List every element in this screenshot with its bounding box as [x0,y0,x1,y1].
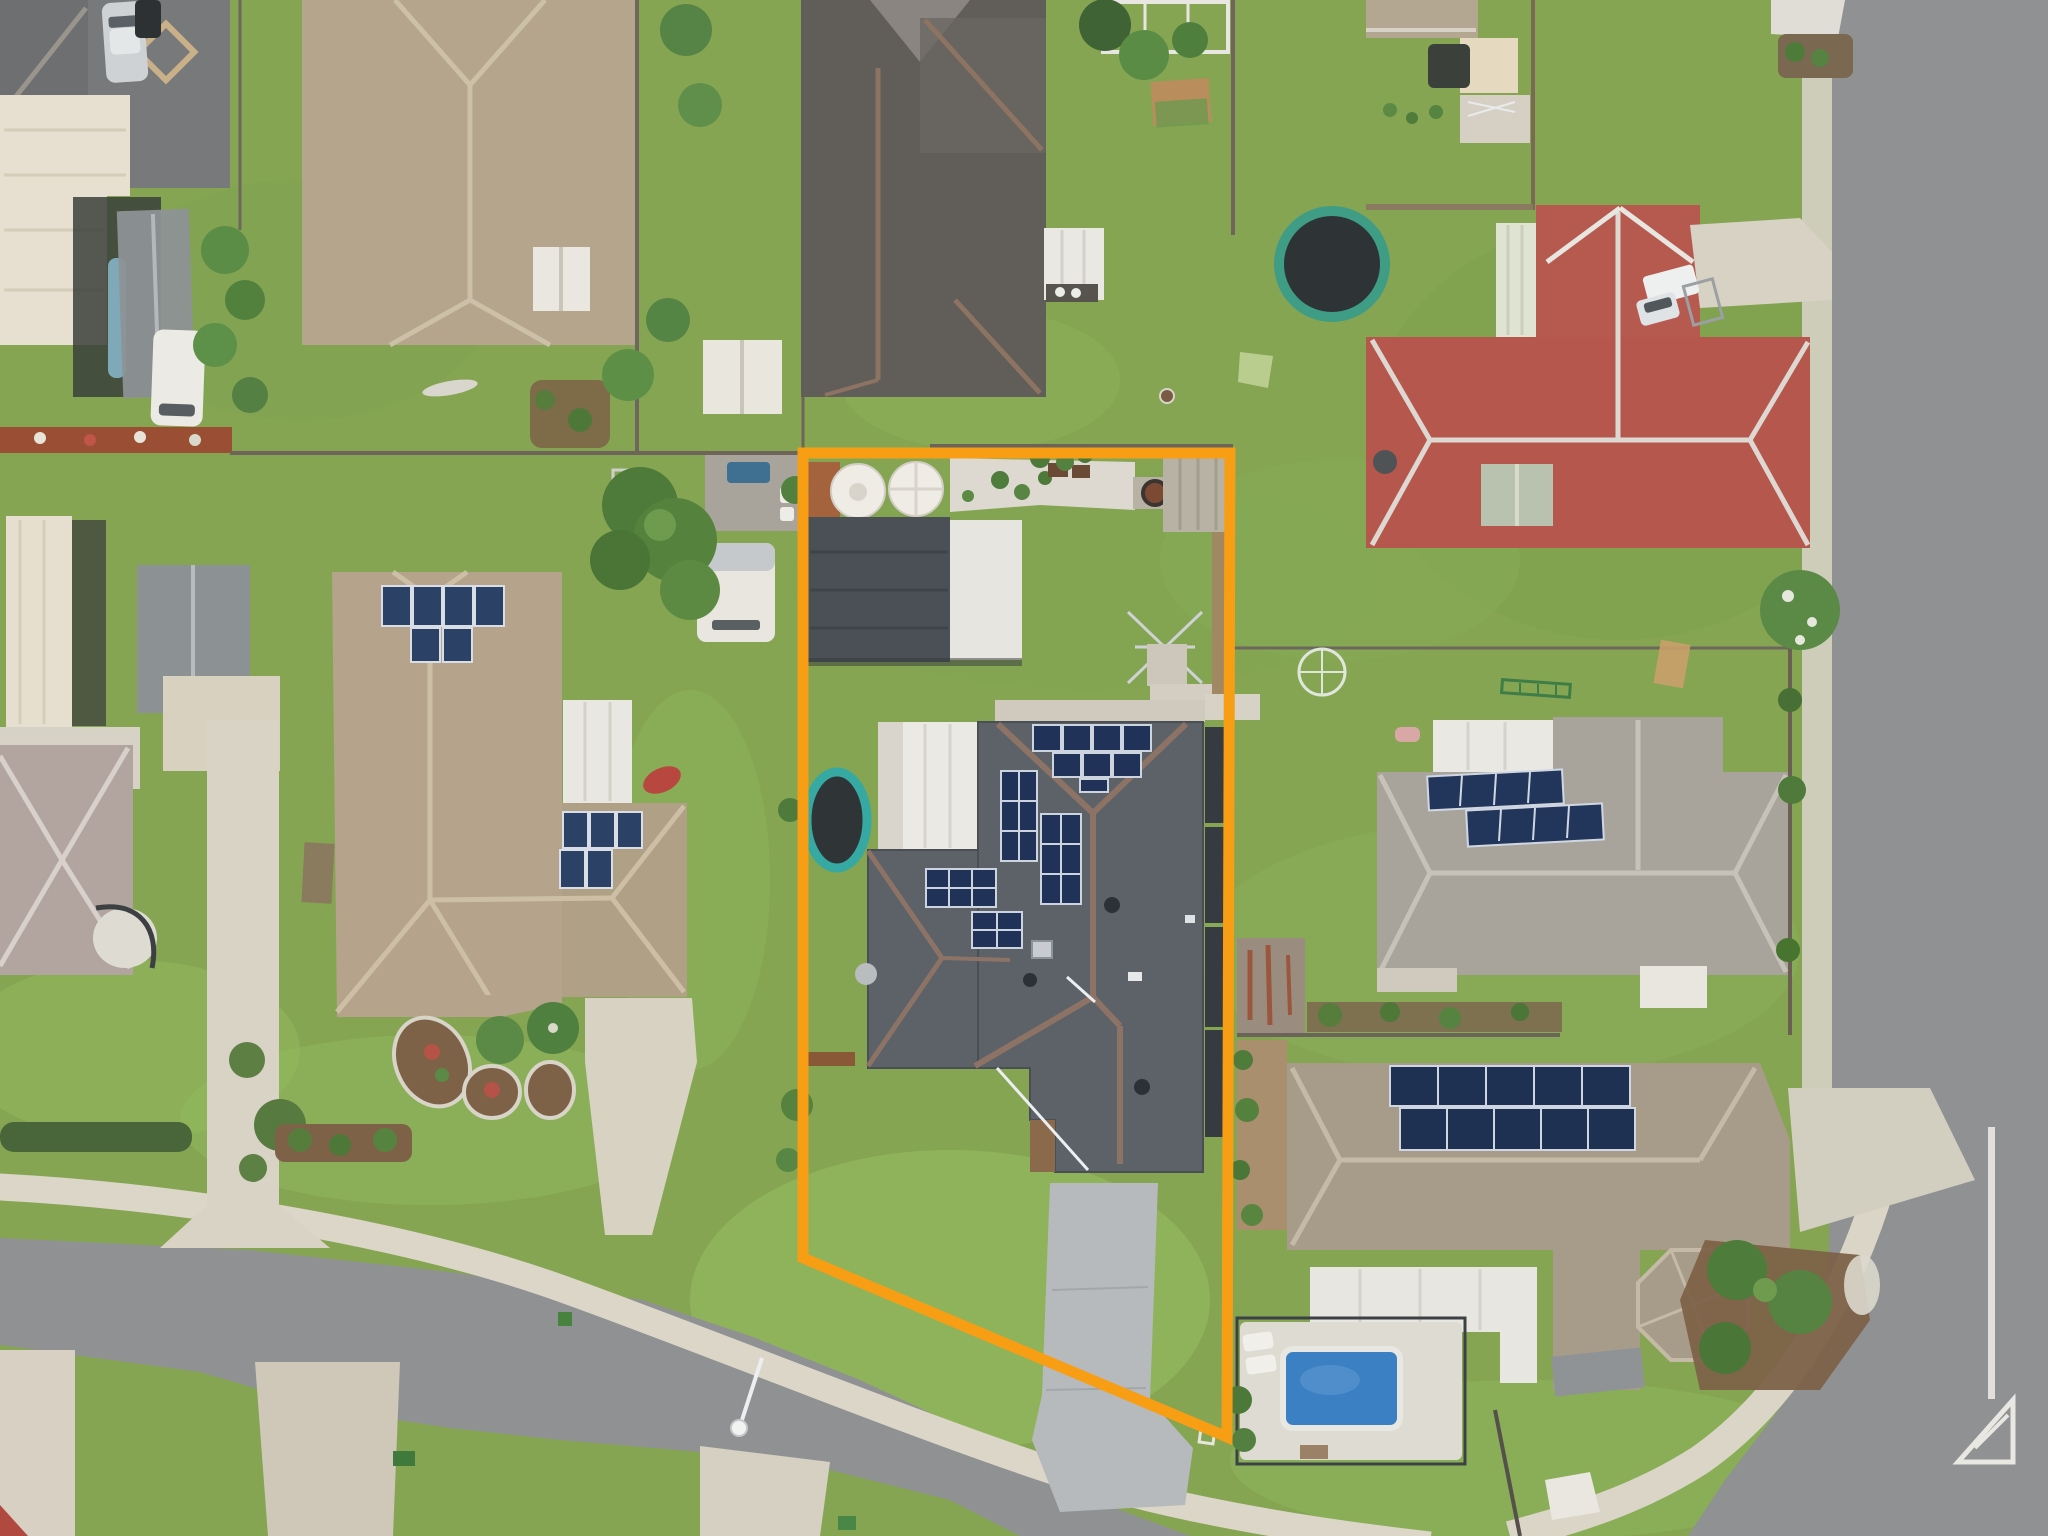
planter-box [1072,465,1090,478]
clothesline-pad [1147,644,1187,686]
roof-top-left-gray [0,0,88,110]
front-bed-highlight [1753,1278,1777,1302]
solar-panel [590,812,615,848]
pebble-garden [93,908,157,968]
outdoor-setting-blue [727,462,770,483]
palm [602,349,654,401]
roof-vent [1104,897,1120,913]
path-top-of-house [995,700,1205,722]
white-flower-dots [1782,590,1794,602]
play-fort-base [1155,98,1209,128]
deck-chair [780,507,794,521]
water-tank-lid [849,483,867,501]
tan-ridge [430,898,612,900]
white-flower-dots [1795,635,1805,645]
backyard-plant [1014,484,1030,500]
satellite-dish [855,963,877,985]
hedge-row [0,1122,192,1152]
sunken-trampoline [1428,44,1470,88]
pot-plant [1383,103,1397,117]
palm [678,83,722,127]
solar-panel [444,586,473,626]
garden-bed-green [1511,1003,1529,1021]
solar-panel [413,586,442,626]
skylight [1032,941,1052,958]
flower-dots [84,434,96,446]
roof-strip-top [1366,0,1478,38]
solar-panel [617,812,642,848]
gravel-bush [1235,1098,1259,1122]
palm [660,4,712,56]
palm [1172,22,1208,58]
trampoline-teal [807,772,867,868]
solar-panel [1093,725,1121,751]
solar-panel [587,850,612,888]
palm [193,323,237,367]
flower-dots [189,434,201,446]
garden-flower [424,1044,440,1060]
garden-bed-long-green [288,1128,312,1152]
paint-patch [1238,352,1273,388]
solar-panel [1033,725,1061,751]
utility-box [838,1516,856,1530]
ivy-on-fence [1778,776,1806,804]
roof-vent [1023,973,1037,987]
streetlight-lamp [731,1420,747,1436]
boundary-bush [776,1148,800,1172]
tree-large [590,530,650,590]
pot-plant [1429,105,1443,119]
cream-building-2 [6,516,72,728]
garden-bush [1811,49,1829,67]
rust-streak [1288,955,1290,1015]
garden-island-bed [526,1062,574,1118]
bird-bath [1160,389,1174,403]
patio-chair [1055,287,1065,297]
garden-bush [1785,42,1805,62]
white-rock-edge [1844,1255,1880,1315]
palm [1119,30,1169,80]
solar-panel [1063,725,1091,751]
poolside-steps [1300,1445,1328,1459]
ivy-on-fence [1776,938,1800,962]
caravan-one-window [159,403,195,416]
concrete-pad-gray-lot [1377,968,1457,992]
caravan-two-window [712,620,760,630]
tree-highlight [644,509,676,541]
bush [229,1042,265,1078]
patio-white-tan-house [563,700,632,803]
garden-flower [484,1082,500,1098]
garden-palm-center [548,1023,558,1033]
front-bed-tree [1699,1322,1751,1374]
road-shoulder-strip [1802,0,1832,1100]
solar-panel [1083,753,1111,777]
backyard-plant [962,490,974,502]
solar-panel [563,812,588,848]
pool-screen-dark [72,520,106,726]
satellite-dish-red-roof [1373,450,1397,474]
backyard-plant [991,471,1009,489]
palm [646,298,690,342]
solar-array-large [1400,1108,1635,1150]
gravel-bush [1233,1050,1253,1070]
shed-white-section [950,520,1022,660]
car-dark-ute [135,0,161,38]
palm [232,377,268,413]
garden-bed-green [1318,1003,1342,1027]
bay-window-roof [398,995,506,1017]
ivy-on-fence [1778,688,1802,712]
palm [225,280,265,320]
utility-box [393,1451,415,1466]
bush [239,1154,267,1182]
tree-large [660,560,720,620]
pebble-strip-west [878,722,903,850]
patio-white-wing [1500,1267,1537,1383]
solar-panel [411,628,440,662]
mulch-bed-green [535,390,555,410]
garden-bed-long-green [373,1128,397,1152]
roof-vent [1134,1079,1150,1095]
garden-tree [476,1016,524,1064]
driveway-red-house [1690,218,1832,308]
shed-shadow [808,658,1022,666]
garden-bed-long-green [329,1134,351,1156]
roof-box-white [1128,972,1142,981]
rust-streak [1268,945,1270,1025]
aerial-drone-photo [0,0,2048,1536]
mulch-bed-green [568,408,592,432]
roof-corner-top-right [1771,0,1845,38]
garden-bed-green [1439,1007,1461,1029]
trampoline-green [1279,211,1385,317]
palm [201,226,249,274]
flower-dots [134,431,146,443]
driveway-below-road-1 [0,1350,75,1536]
awning-side [301,842,334,903]
aerial-photo-stage [0,0,2048,1536]
solar-panel [1080,779,1108,792]
shed-white-gray-lot [1640,966,1707,1008]
gravel-bush [1241,1204,1263,1226]
garden-bed-green [1380,1002,1400,1022]
pool-water-light [1300,1365,1360,1395]
solar-panel [443,628,472,662]
gable-panel-green [1496,223,1536,337]
pot-plant [1406,112,1418,124]
flower-dots [34,432,46,444]
main-ridge [942,958,1010,960]
poolside-bush [1232,1428,1256,1452]
car-silver-windshield [108,15,139,28]
garden-flower [435,1068,449,1082]
pink-blanket [1395,727,1420,742]
utility-box [558,1312,572,1326]
solar-panel [1113,753,1141,777]
solar-array-large [1390,1066,1630,1106]
solar-panel [475,586,504,626]
patio-white-gray-house [1433,720,1553,772]
front-bed-tree [1768,1270,1832,1334]
white-flower-dots [1807,617,1817,627]
driveway-below-road-2 [255,1362,400,1536]
solar-panel [1123,725,1151,751]
patio-roof-white-main-house [903,722,978,850]
road-centre-line [1988,1127,1995,1399]
solar-panel [1053,753,1081,777]
solar-panel [560,850,585,888]
roof-box-white [1185,915,1195,923]
solar-panel [382,586,411,626]
boat-small [1545,1472,1600,1520]
patio-chair [1071,288,1081,298]
